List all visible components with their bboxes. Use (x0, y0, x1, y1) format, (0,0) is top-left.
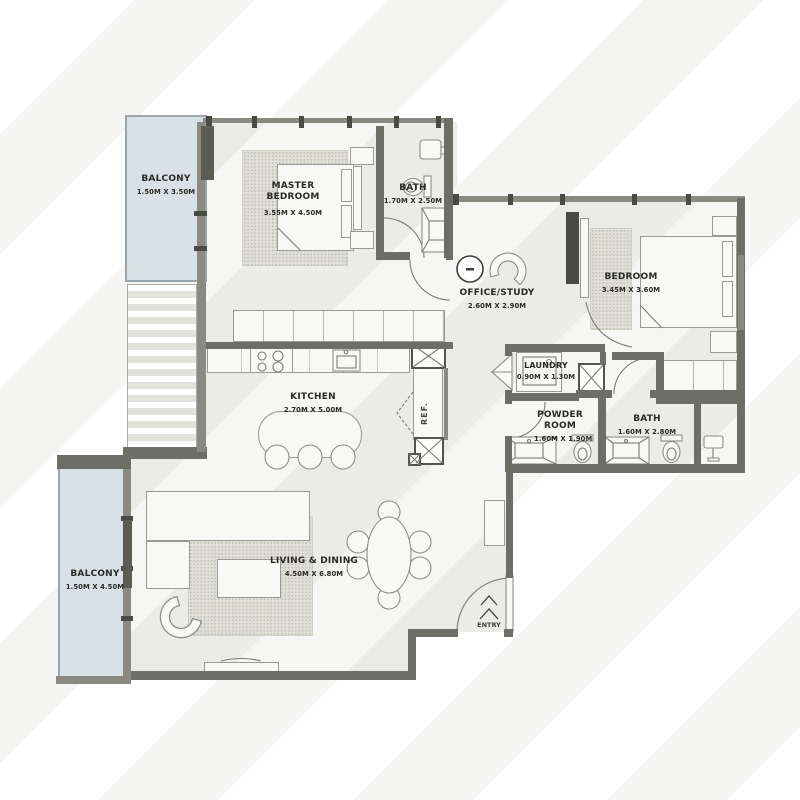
wall-mullion (453, 194, 459, 205)
floor-plan: BALCONY 1.50M X 3.50M MASTER BEDROOM 3.5… (0, 0, 800, 800)
wall-mullion (686, 194, 691, 205)
duct-shaft (578, 363, 605, 393)
sofa (146, 491, 310, 541)
wall-segment (504, 629, 513, 637)
room-name: OFFICE/STUDY (460, 288, 535, 299)
window-wall (738, 255, 744, 330)
ac-louver-screen (127, 284, 197, 450)
wall-segment (123, 447, 207, 459)
window-wall (203, 118, 453, 123)
wall-mullion (194, 211, 207, 216)
master-headboard (353, 166, 362, 230)
room-name: KITCHEN (284, 392, 342, 403)
entry-label: ENTRY (477, 621, 501, 629)
wall-segment (505, 344, 512, 356)
wall-segment (694, 402, 701, 464)
wall-mullion (299, 116, 304, 128)
wall-segment (376, 126, 384, 258)
bedroom-bed-pillow (722, 241, 733, 277)
room-label-living-dining: LIVING & DINING 4.50M X 6.80M (270, 556, 358, 578)
wall-segment (505, 436, 512, 472)
bedroom-bed-pillow (722, 281, 733, 317)
room-dims: 2.60M X 2.90M (460, 302, 535, 310)
room-label-master-bedroom: MASTER BEDROOM 3.55M X 4.50M (258, 181, 328, 217)
wall-mullion (252, 116, 257, 128)
wall-segment (506, 464, 513, 578)
room-dims: 1.60M X 2.80M (618, 428, 676, 436)
wall-segment (376, 252, 410, 260)
wall-mullion (194, 246, 207, 251)
room-dims: 1.70M X 2.50M (384, 197, 442, 205)
wall-mullion (121, 616, 133, 621)
master-nightstand (350, 231, 374, 249)
balcony-slider-door (201, 126, 214, 180)
room-label-balcony-bottom: BALCONY 1.50M X 4.50M (63, 569, 127, 591)
room-dims: 2.70M X 5.00M (284, 406, 342, 414)
room-label-office-study: OFFICE/STUDY 2.60M X 2.90M (460, 288, 535, 310)
wall-segment (612, 352, 662, 360)
wall-segment (203, 342, 453, 349)
room-dims: 0.90M X 1.30M (517, 373, 575, 381)
room-label-bath: BATH 1.60M X 2.80M (618, 414, 676, 436)
window-wall (453, 196, 745, 202)
room-label-bedroom: BEDROOM 3.45M X 3.60M (602, 272, 660, 294)
wall-segment (444, 368, 448, 440)
room-name: LAUNDRY (517, 361, 575, 371)
room-name: BEDROOM (602, 272, 660, 283)
wall-segment (600, 352, 606, 365)
balcony-top (125, 115, 207, 282)
room-name: BALCONY (63, 569, 127, 580)
room-name: BALCONY (131, 174, 201, 185)
wall-segment (737, 198, 745, 472)
pocket-door-wall (566, 212, 579, 284)
room-dims: 3.45M X 3.60M (602, 286, 660, 294)
sofa-chaise (146, 541, 190, 589)
pocket-door-panel (580, 218, 589, 298)
room-dims: 3.55M X 4.50M (258, 209, 328, 217)
room-dims: 1.50M X 3.50M (131, 188, 201, 196)
wall-mullion (436, 116, 441, 128)
room-dims: 1.50M X 4.50M (63, 583, 127, 591)
room-label-master-bath: BATH 1.70M X 2.50M (384, 183, 442, 205)
kitchen-counter (207, 347, 410, 373)
master-bed-pillow (341, 169, 352, 202)
wall-mullion (394, 116, 399, 128)
wall-segment (197, 282, 206, 452)
room-name: MASTER BEDROOM (258, 181, 328, 203)
master-closet-row (233, 310, 445, 342)
ref-label: REF. (420, 385, 429, 425)
room-label-laundry: LAUNDRY 0.90M X 1.30M (517, 361, 575, 381)
wall-segment (123, 671, 416, 680)
room-name: POWDER ROOM (534, 410, 586, 432)
bedroom-nightstand (710, 331, 737, 353)
wall-segment (446, 252, 453, 260)
wall-segment (598, 390, 606, 472)
wall-mullion (508, 194, 513, 205)
wall-mullion (347, 116, 352, 128)
room-label-powder-room: POWDER ROOM 1.60M X 1.90M (534, 410, 586, 443)
stove (250, 348, 293, 373)
wall-segment (576, 390, 612, 398)
room-dims: 1.60M X 1.90M (534, 435, 586, 443)
hall-cabinet (484, 500, 505, 546)
kitchen-island (258, 411, 362, 458)
duct-shaft (408, 453, 421, 466)
room-label-kitchen: KITCHEN 2.70M X 5.00M (284, 392, 342, 414)
master-nightstand (350, 147, 374, 165)
wall-segment (57, 455, 131, 469)
wall-mullion (560, 194, 565, 205)
wall-segment (506, 464, 745, 473)
wall-segment (56, 676, 131, 684)
bedroom-nightstand (712, 216, 737, 236)
room-name: BATH (618, 414, 676, 425)
wall-segment (444, 118, 453, 258)
wall-segment (509, 393, 579, 401)
room-name: BATH (384, 183, 442, 194)
wall-segment (505, 344, 605, 352)
room-label-balcony-top: BALCONY 1.50M X 3.50M (131, 174, 201, 196)
room-dims: 4.50M X 6.80M (270, 570, 358, 578)
room-name: LIVING & DINING (270, 556, 358, 567)
wall-segment (505, 390, 512, 404)
wall-mullion (632, 194, 637, 205)
